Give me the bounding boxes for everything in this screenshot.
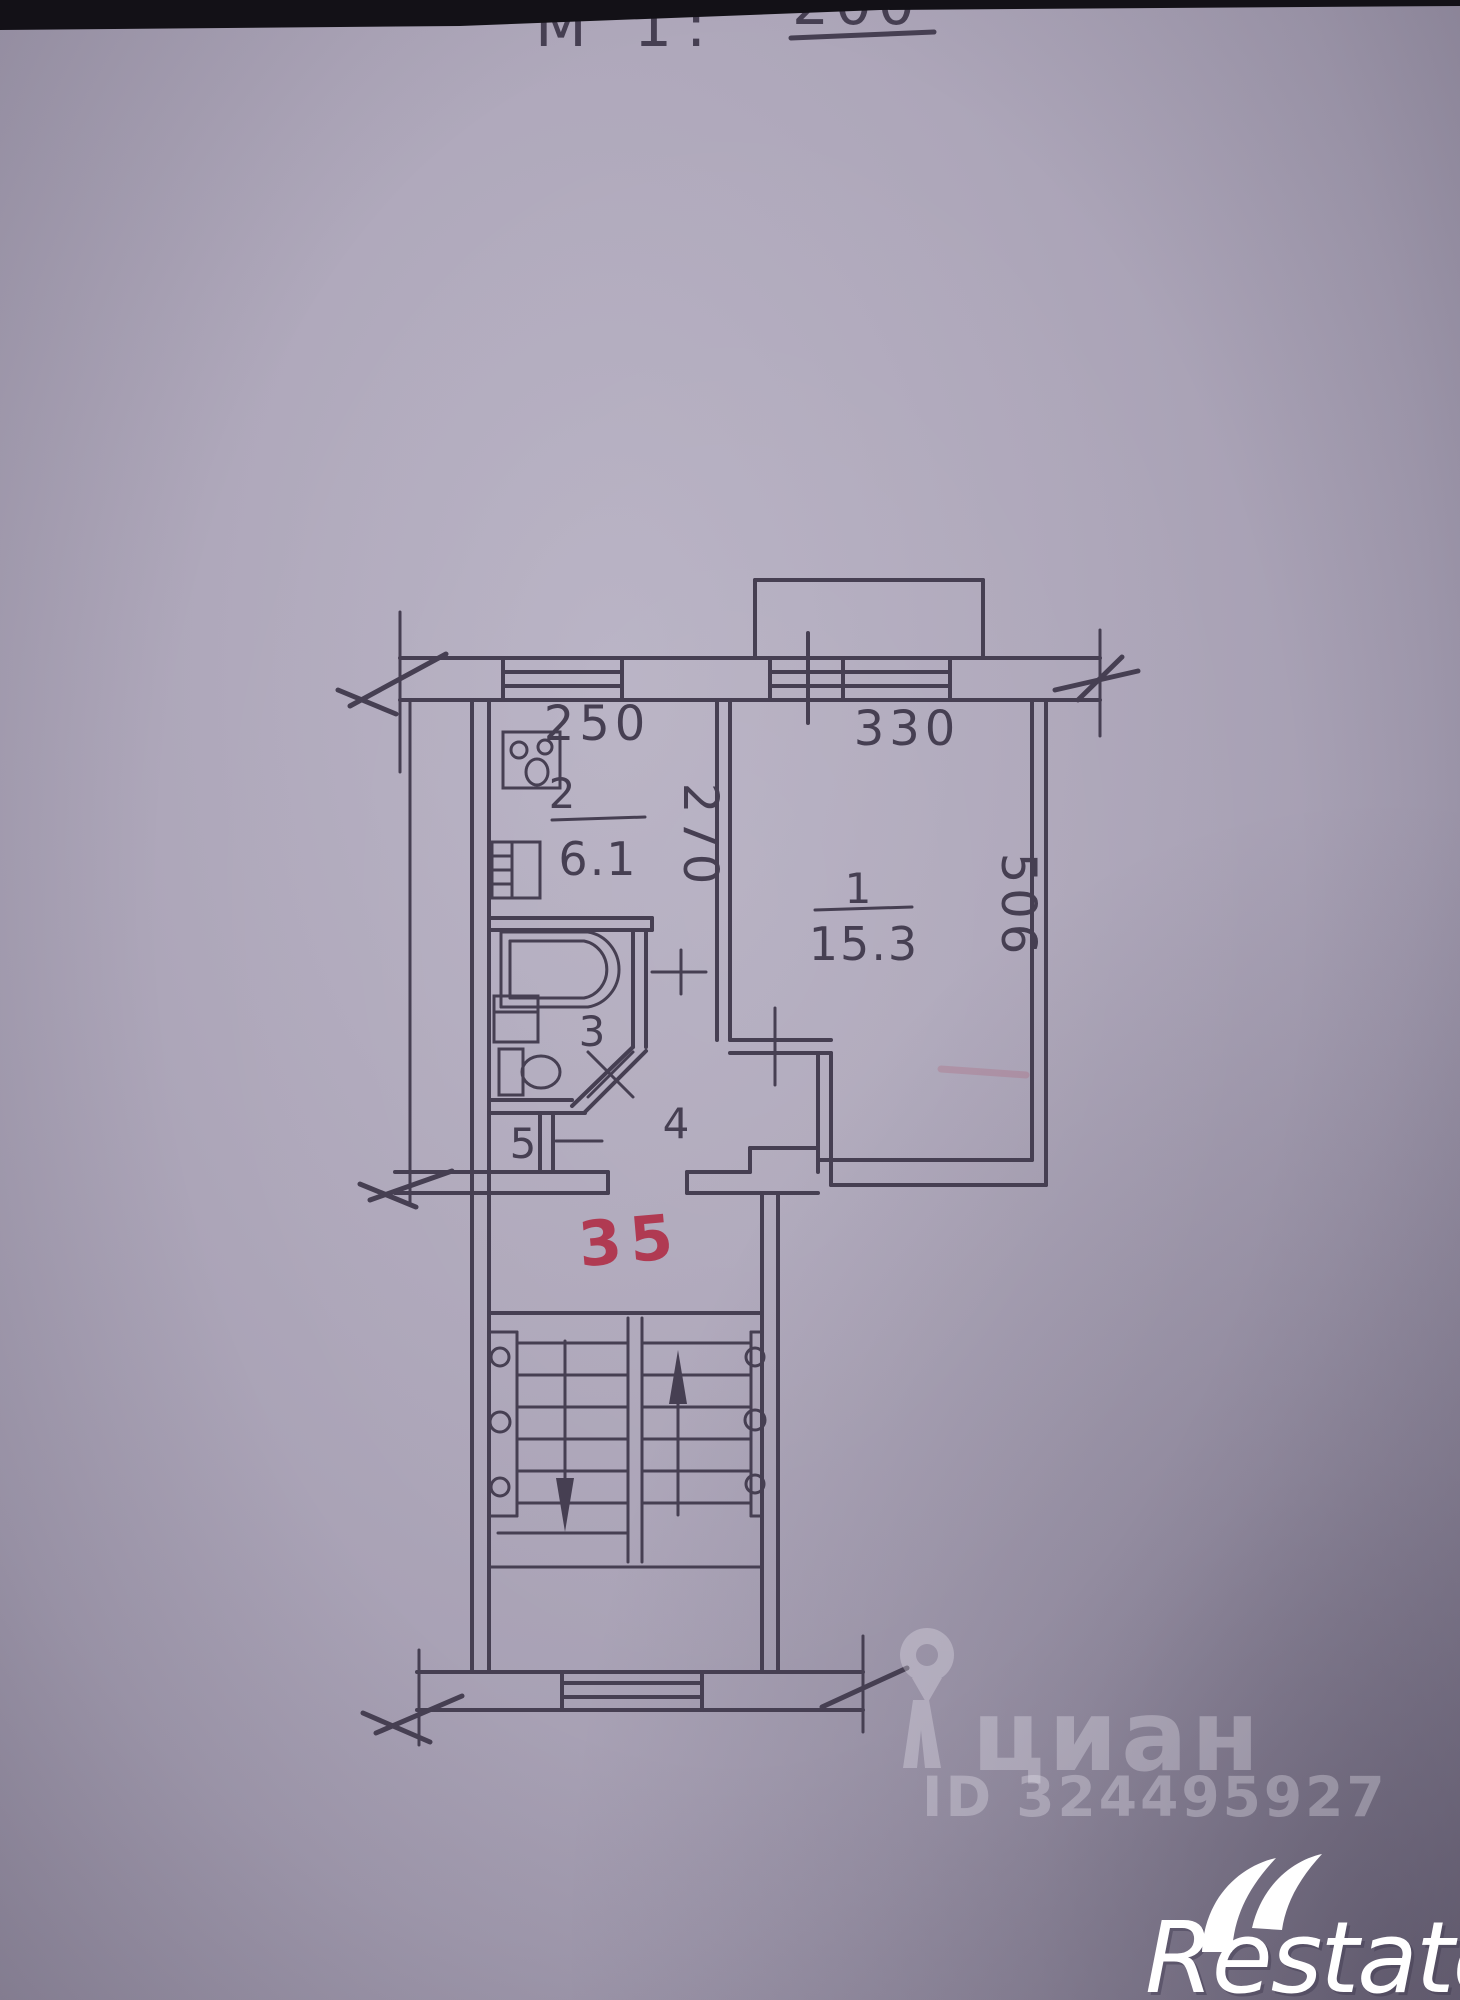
living-area-underline [815, 907, 912, 910]
kitchen-number-label: 2 [549, 769, 576, 818]
cian-watermark: циан ID 324495927 [900, 1628, 1388, 1829]
kitchen-sink-icon [492, 842, 540, 898]
axis-mark-bottom-left-wall [360, 1171, 452, 1207]
hall-walls [730, 1008, 831, 1185]
hall-number-label: 4 [663, 1099, 690, 1148]
dim-room-width-label: 330 [854, 701, 961, 757]
top-exterior-wall [400, 633, 1100, 723]
axis-mark-top-right [1055, 630, 1138, 736]
photo-top-black-bar [0, 0, 1460, 30]
toilet-icon [499, 1049, 560, 1095]
restate-logo-text: Restate [1145, 1901, 1460, 2000]
wc-number-label: 5 [510, 1119, 537, 1168]
stair-corridor-walls [762, 1193, 778, 1672]
bottom-exterior-wall [417, 1672, 863, 1710]
left-exterior-wall [410, 700, 489, 1672]
red-smudge [941, 1069, 1026, 1075]
axis-mark-bottom-left [363, 1650, 462, 1745]
living-area-label: 15.3 [809, 917, 919, 971]
dim-kitchen-depth-label: 270 [672, 783, 728, 890]
dim-room-depth-label: 506 [990, 853, 1046, 960]
location-pin-icon [900, 1628, 954, 1768]
staircase [489, 1313, 765, 1567]
dim-kitchen-width-label: 250 [544, 696, 651, 752]
bathroom-door-x-icon [588, 1052, 633, 1097]
apartment-bottom-wall [395, 1148, 1046, 1193]
kitchen-area-label: 6.1 [558, 832, 637, 886]
living-number-label: 1 [845, 864, 872, 913]
balcony-outline [755, 580, 983, 658]
bathroom-number-label: 3 [579, 1007, 606, 1056]
apartment-number-label: 35 [575, 1200, 683, 1282]
floor-plan-svg: М 1: 200 [0, 0, 1460, 2000]
cian-watermark-id: ID 324495927 [922, 1765, 1388, 1829]
axis-mark-bottom-right [822, 1636, 907, 1732]
restate-logo: Restate Restate [1145, 1854, 1460, 2000]
axis-mark-top-left [338, 612, 446, 772]
floor-plan-photo: М 1: 200 [0, 0, 1460, 2000]
